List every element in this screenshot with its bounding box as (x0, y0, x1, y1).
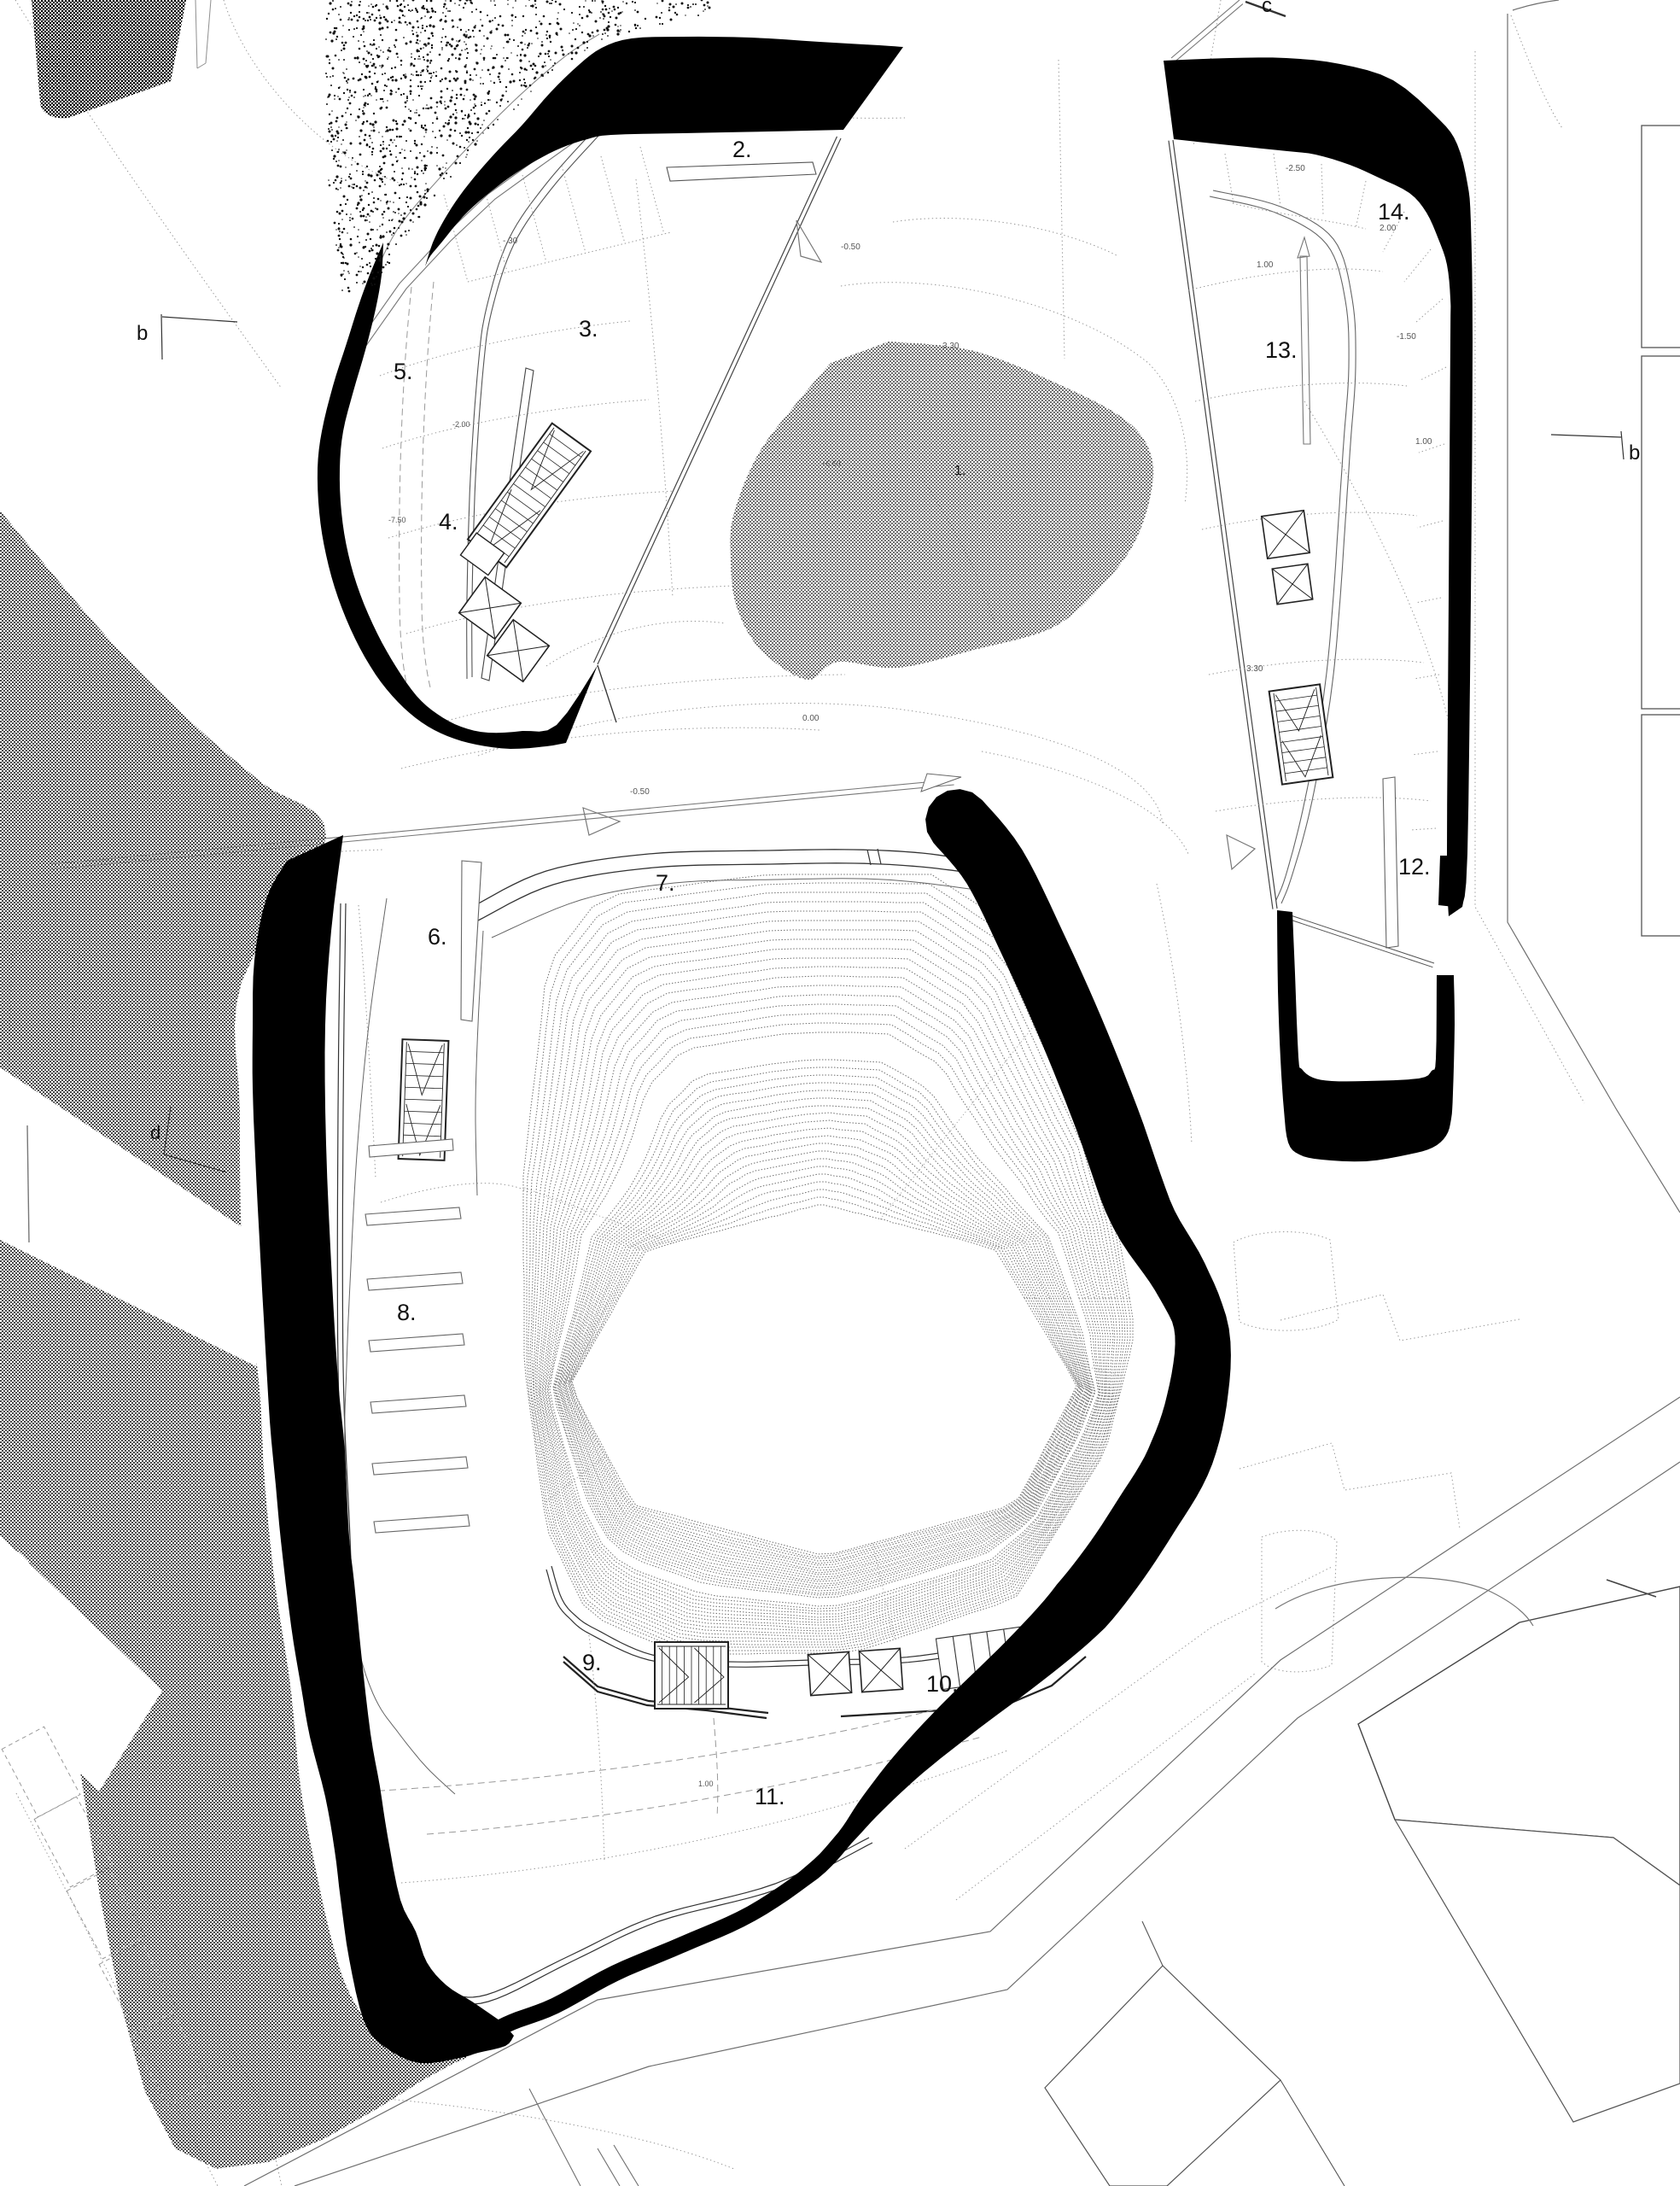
svg-text:+6.60: +6.60 (821, 459, 841, 468)
svg-text:8.: 8. (397, 1300, 417, 1325)
svg-text:13.: 13. (1265, 337, 1298, 363)
svg-text:3.30: 3.30 (1246, 664, 1263, 674)
svg-text:4.: 4. (439, 509, 458, 535)
svg-text:-7.50: -7.50 (388, 516, 406, 524)
svg-text:5.: 5. (394, 359, 413, 384)
svg-text:1.: 1. (954, 464, 965, 478)
svg-text:b: b (1629, 441, 1640, 465)
svg-text:c: c (1262, 0, 1272, 17)
svg-text:-2.50: -2.50 (1286, 164, 1305, 173)
svg-text:-0.50: -0.50 (841, 243, 860, 252)
svg-text:10.: 10. (926, 1671, 959, 1697)
svg-text:9.: 9. (582, 1650, 602, 1675)
svg-text:1.00: 1.00 (1415, 437, 1432, 447)
svg-text:-1.50: -1.50 (1397, 332, 1416, 342)
svg-text:6.: 6. (428, 924, 447, 950)
svg-text:14.: 14. (1378, 199, 1410, 225)
svg-text:2.00: 2.00 (1380, 224, 1397, 233)
svg-text:3.: 3. (579, 316, 598, 342)
svg-text:12.: 12. (1398, 854, 1431, 880)
svg-text:2.: 2. (732, 137, 752, 162)
svg-text:b: b (137, 322, 148, 345)
svg-text:-0.50: -0.50 (630, 787, 650, 797)
svg-text:-2.00: -2.00 (452, 420, 470, 429)
svg-text:11.: 11. (755, 1784, 785, 1809)
svg-text:d: d (150, 1122, 160, 1143)
svg-text:0.00: 0.00 (802, 714, 820, 723)
svg-text:1.00: 1.00 (1257, 260, 1274, 270)
svg-text:-.30: -.30 (503, 237, 518, 246)
svg-text:1.00: 1.00 (698, 1780, 714, 1788)
svg-text:3.30: 3.30 (942, 342, 960, 351)
svg-text:7.: 7. (656, 870, 675, 896)
